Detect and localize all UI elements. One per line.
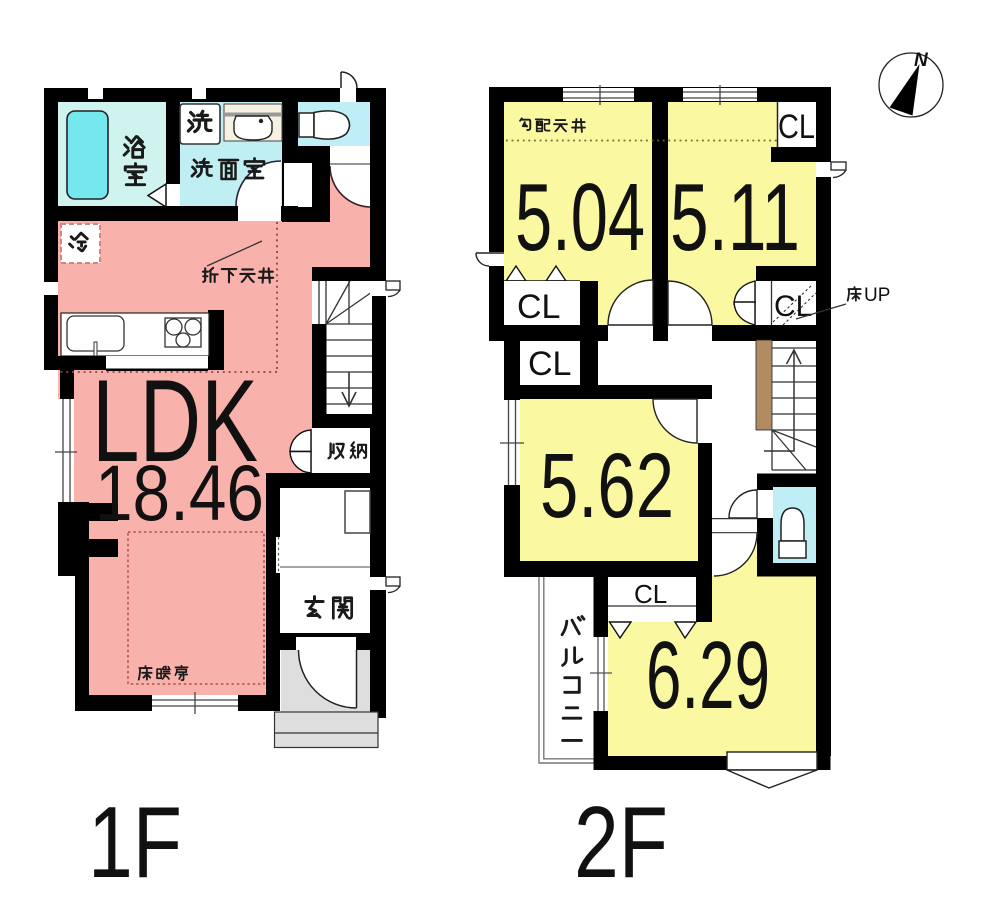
svg-text:18.46: 18.46 [95, 448, 264, 537]
svg-text:CL: CL [528, 345, 571, 383]
svg-text:N: N [914, 50, 929, 71]
svg-text:CL: CL [778, 108, 815, 146]
svg-text:CL: CL [774, 290, 812, 323]
svg-text:5.62: 5.62 [540, 435, 674, 537]
svg-text:5.11: 5.11 [670, 164, 800, 271]
svg-text:2F: 2F [574, 787, 668, 899]
svg-text:CL: CL [517, 288, 560, 326]
svg-text:1F: 1F [88, 787, 182, 899]
svg-text:CL: CL [634, 579, 667, 609]
svg-text:UP: UP [864, 285, 890, 306]
svg-text:5.04: 5.04 [515, 164, 645, 271]
svg-text:6.29: 6.29 [646, 622, 770, 729]
